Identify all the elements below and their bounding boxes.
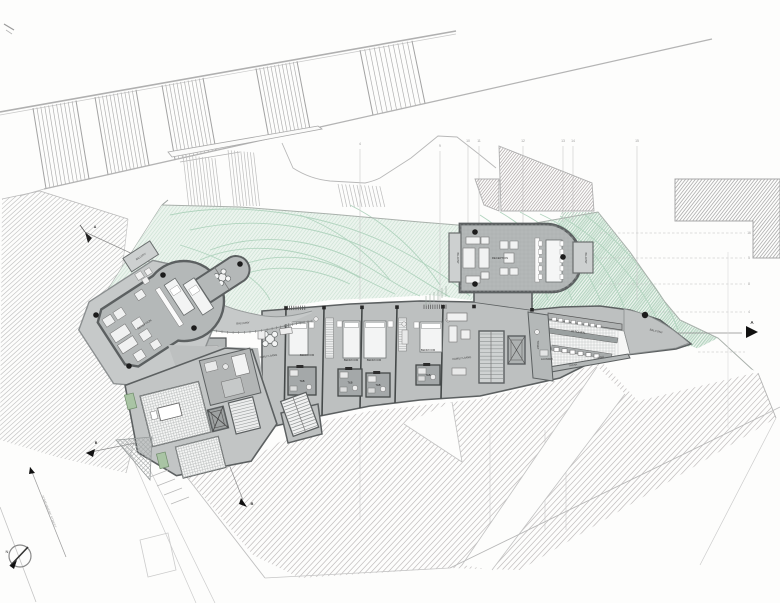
svg-text:BALCONY: BALCONY bbox=[456, 253, 459, 264]
svg-text:BEDROOM: BEDROOM bbox=[344, 358, 359, 362]
svg-text:T&B: T&B bbox=[375, 383, 380, 387]
svg-text:15: 15 bbox=[635, 139, 639, 143]
svg-text:9: 9 bbox=[439, 144, 441, 148]
svg-text:16: 16 bbox=[747, 231, 751, 235]
svg-text:11: 11 bbox=[477, 139, 481, 143]
svg-text:BEDROOM: BEDROOM bbox=[300, 353, 315, 357]
svg-text:13: 13 bbox=[561, 139, 565, 143]
svg-text:5: 5 bbox=[748, 256, 750, 260]
svg-text:LAUNDRY: LAUNDRY bbox=[541, 357, 554, 361]
svg-text:BEDROOM: BEDROOM bbox=[367, 358, 382, 362]
svg-text:BEDROOM: BEDROOM bbox=[421, 348, 436, 352]
svg-text:T&B: T&B bbox=[299, 379, 304, 383]
svg-text:8: 8 bbox=[748, 282, 750, 286]
svg-text:T&B: T&B bbox=[425, 373, 430, 377]
svg-text:4: 4 bbox=[748, 310, 750, 314]
svg-text:B: B bbox=[251, 501, 254, 506]
svg-text:T&B: T&B bbox=[347, 381, 352, 385]
svg-text:14: 14 bbox=[571, 139, 575, 143]
svg-text:N: N bbox=[6, 549, 9, 554]
svg-text:TOILET: TOILET bbox=[536, 340, 540, 349]
svg-text:4: 4 bbox=[359, 142, 361, 146]
svg-text:RECEPTION: RECEPTION bbox=[492, 256, 508, 260]
svg-text:10: 10 bbox=[466, 139, 470, 143]
svg-text:12: 12 bbox=[521, 139, 525, 143]
svg-text:BALCONY: BALCONY bbox=[584, 253, 587, 264]
